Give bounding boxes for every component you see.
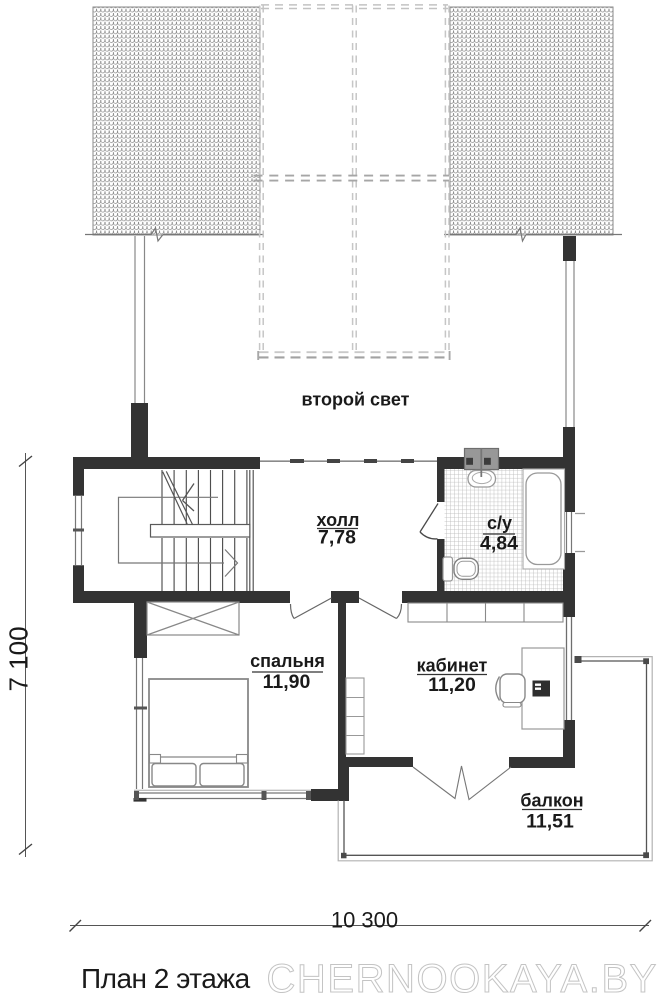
svg-text:второй свет: второй свет — [302, 390, 410, 410]
svg-text:спальня: спальня — [250, 651, 325, 671]
svg-text:10 300: 10 300 — [331, 908, 398, 933]
svg-text:11,90: 11,90 — [263, 671, 311, 693]
svg-text:7,78: 7,78 — [318, 527, 356, 549]
svg-text:кабинет: кабинет — [417, 656, 488, 676]
svg-text:балкон: балкон — [520, 791, 583, 811]
svg-text:7 100: 7 100 — [4, 626, 34, 691]
svg-text:4,84: 4,84 — [480, 533, 518, 555]
svg-text:CHERNOOKAYA.BY: CHERNOOKAYA.BY — [267, 957, 658, 1000]
svg-text:с/у: с/у — [487, 513, 512, 533]
svg-text:11,51: 11,51 — [526, 811, 574, 833]
svg-text:11,20: 11,20 — [428, 674, 476, 696]
svg-text:План 2 этажа: План 2 этажа — [81, 963, 251, 994]
